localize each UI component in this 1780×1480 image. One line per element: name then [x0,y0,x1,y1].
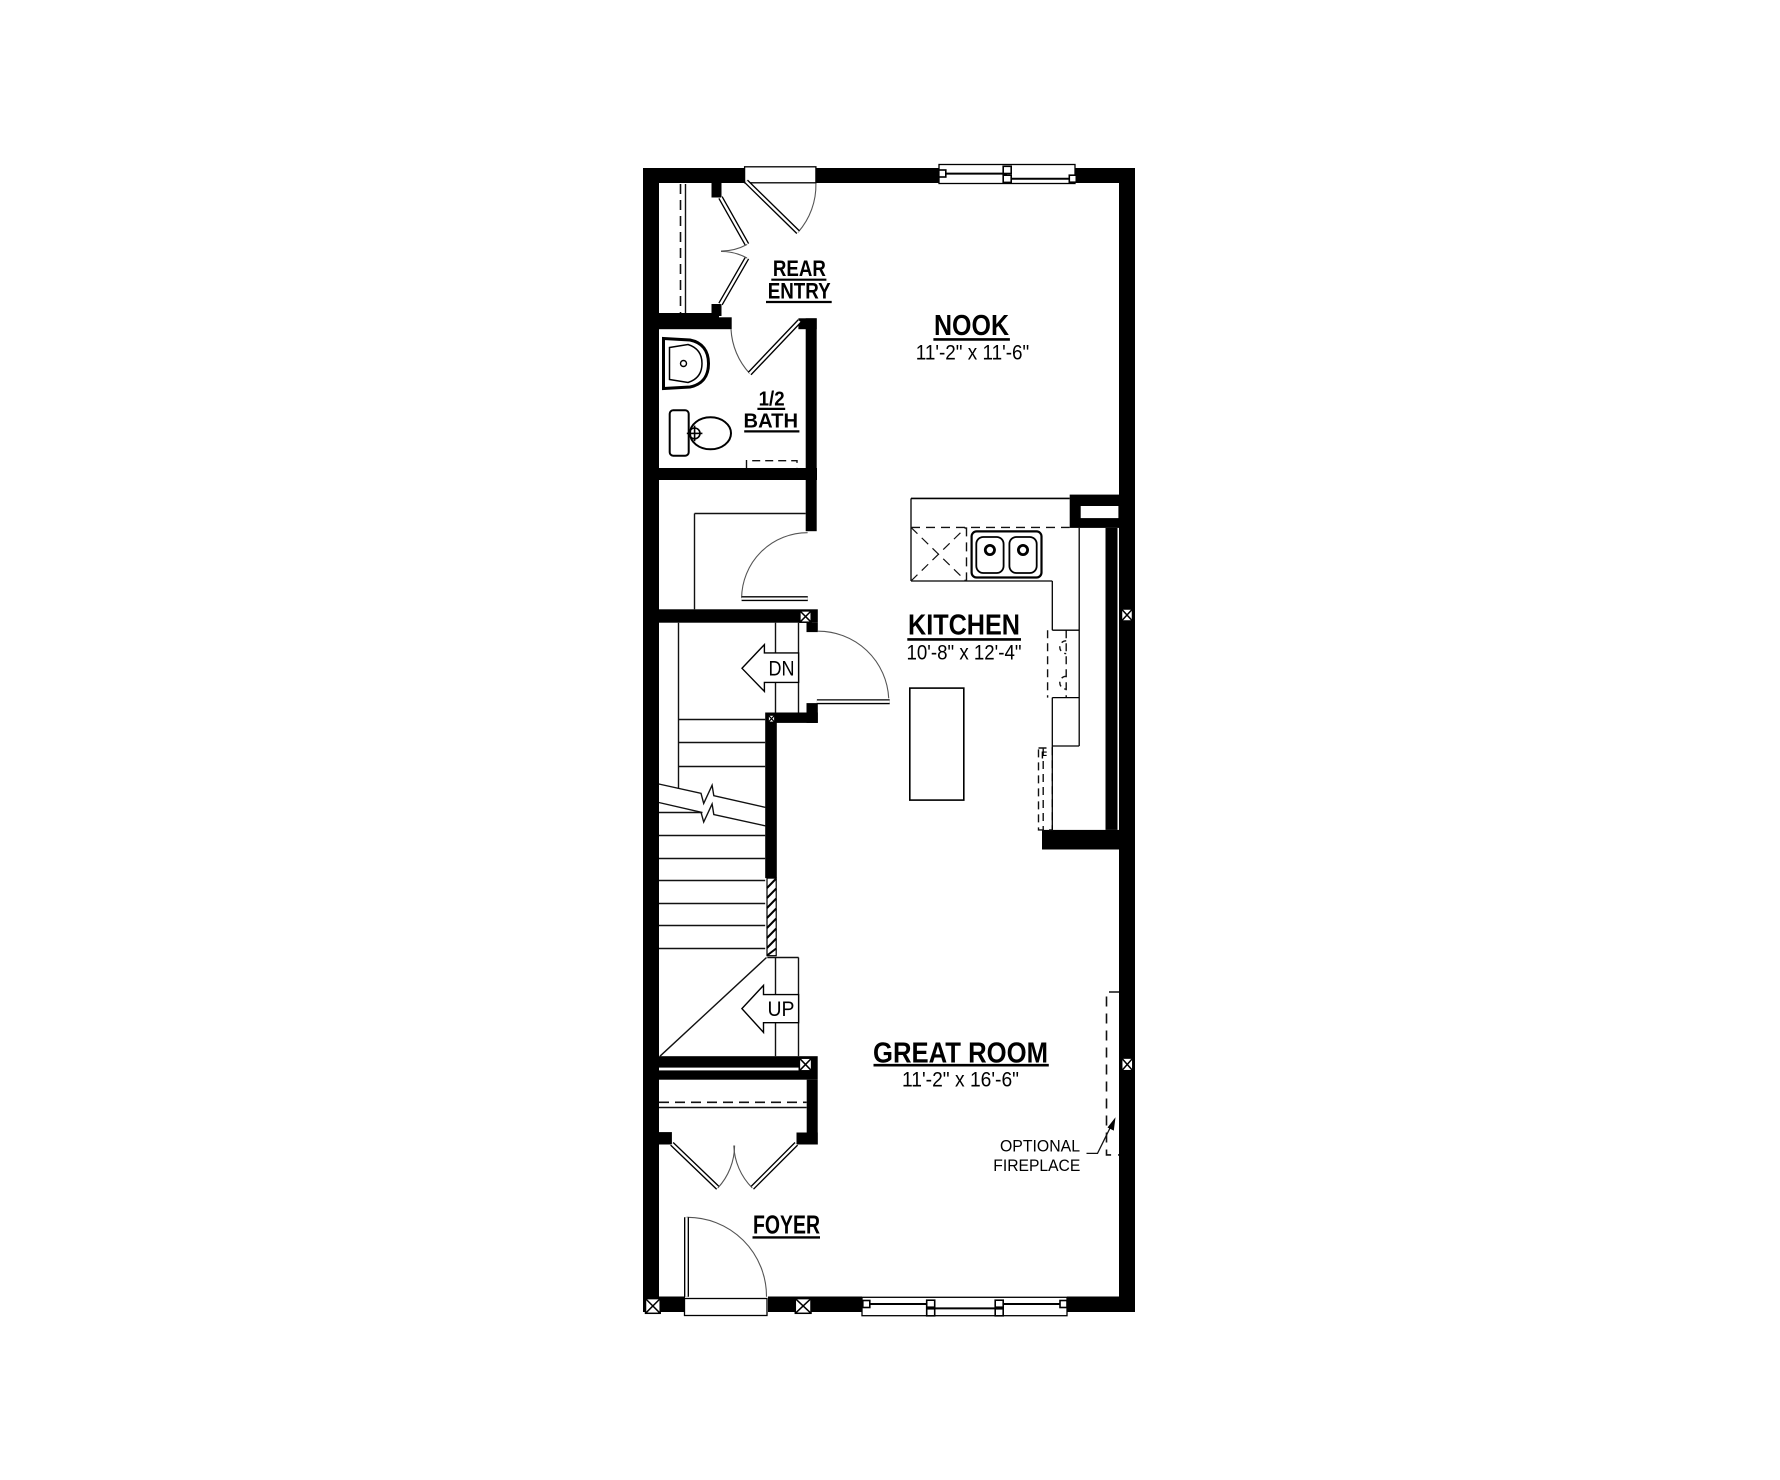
svg-text:10'-8" x 12'-4": 10'-8" x 12'-4" [907,641,1022,665]
svg-text:NOOK: NOOK [934,310,1009,342]
svg-text:REAR: REAR [773,256,826,281]
svg-text:DN: DN [769,657,795,680]
svg-text:BATH: BATH [744,409,799,432]
svg-text:UP: UP [768,998,795,1021]
svg-text:F: F [1041,751,1047,762]
svg-text:KITCHEN: KITCHEN [908,610,1020,642]
svg-text:FOYER: FOYER [753,1210,820,1240]
svg-text:ENTRY: ENTRY [768,279,831,304]
svg-text:FIREPLACE: FIREPLACE [993,1157,1080,1175]
svg-text:11'-2" x 16'-6": 11'-2" x 16'-6" [902,1068,1019,1092]
svg-text:1/2: 1/2 [759,388,785,411]
svg-text:11'-2" x 11'-6": 11'-2" x 11'-6" [916,341,1030,365]
svg-text:OPTIONAL: OPTIONAL [1000,1137,1080,1155]
